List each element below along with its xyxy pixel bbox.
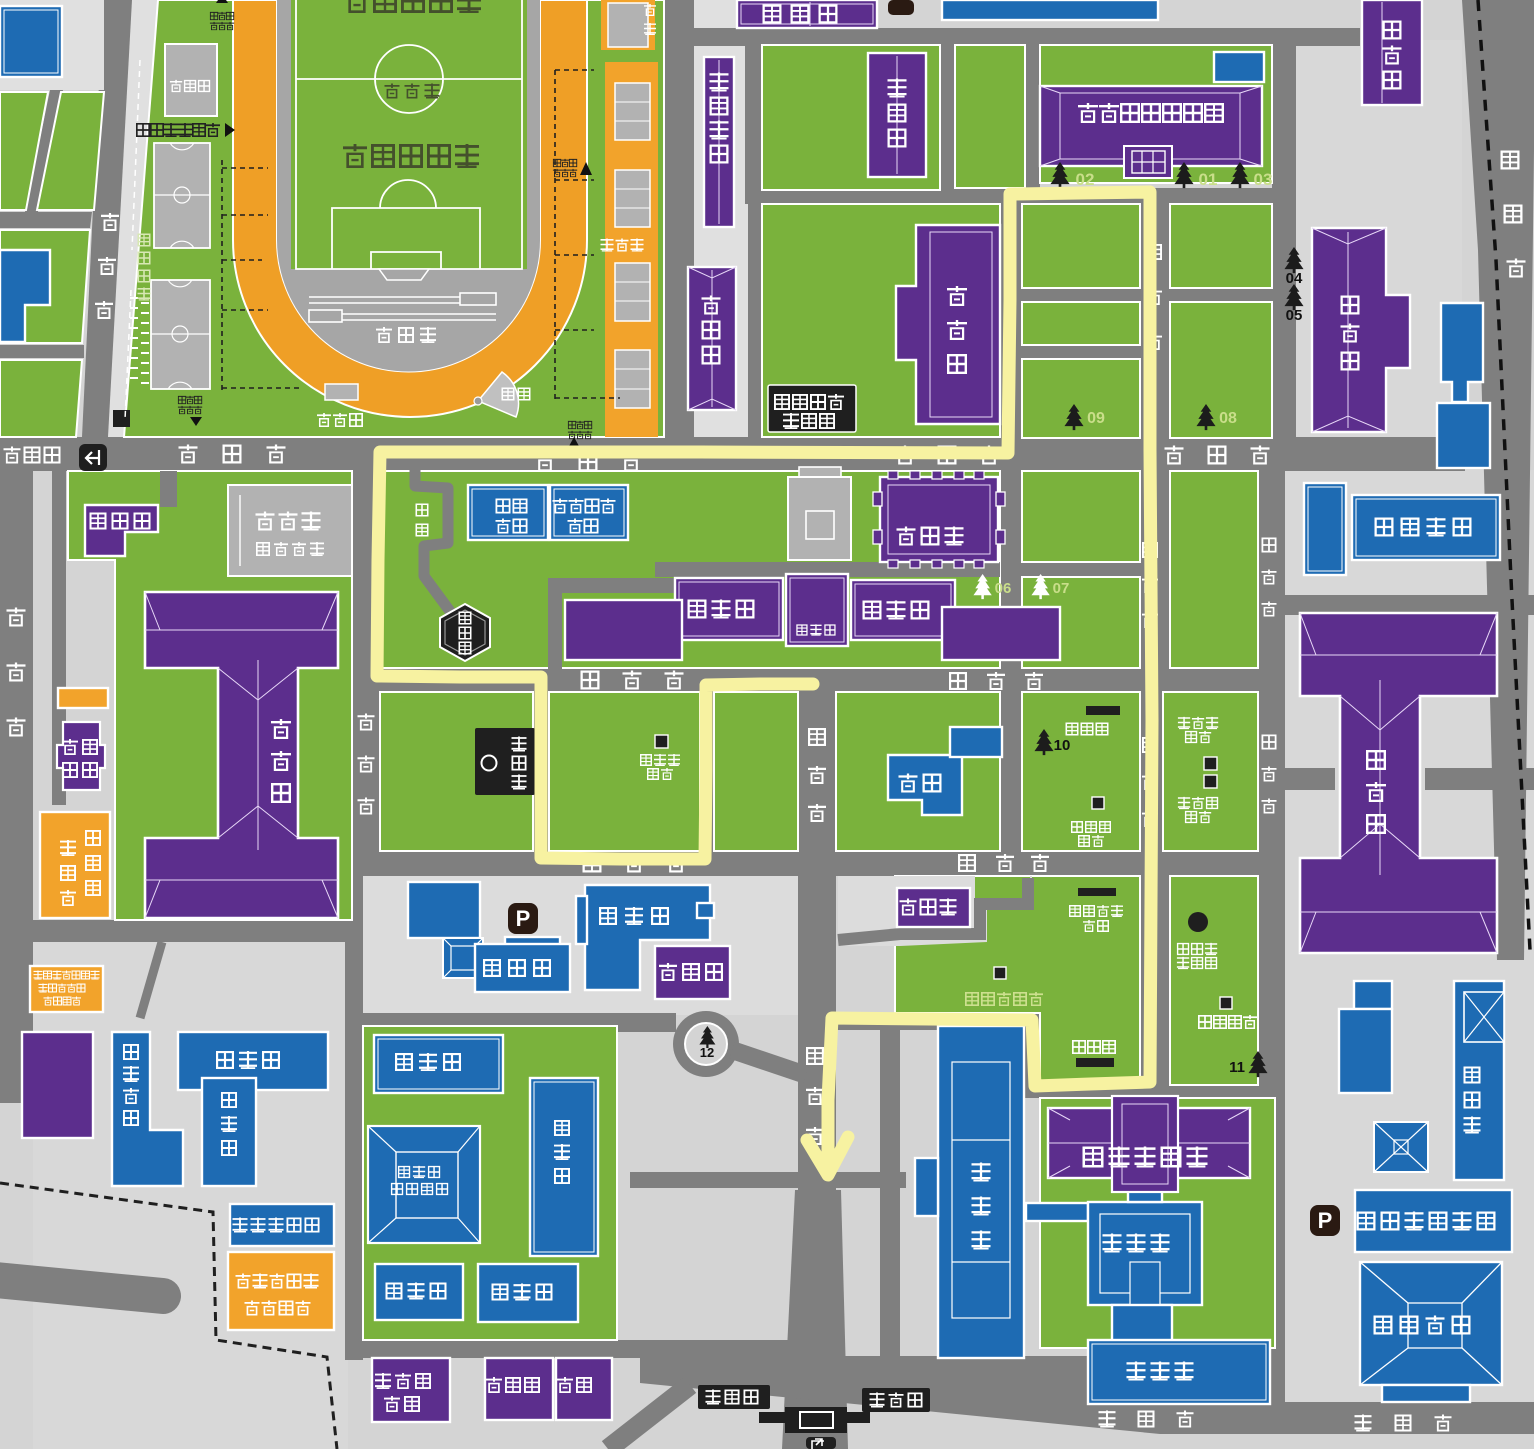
svg-text:10: 10: [1054, 737, 1071, 754]
svg-text:07: 07: [1053, 580, 1070, 597]
svg-text:08: 08: [1219, 410, 1237, 427]
svg-text:04: 04: [1286, 270, 1303, 287]
svg-text:12: 12: [700, 1045, 714, 1060]
svg-text:01: 01: [1199, 170, 1218, 189]
svg-text:03: 03: [1254, 170, 1273, 189]
svg-text:P: P: [516, 906, 531, 931]
svg-text:06: 06: [995, 580, 1012, 597]
svg-text:02: 02: [1076, 170, 1095, 189]
svg-text:P: P: [1318, 1208, 1333, 1233]
svg-text:05: 05: [1286, 307, 1303, 324]
svg-text:11: 11: [1229, 1059, 1245, 1076]
svg-text:09: 09: [1087, 410, 1105, 427]
